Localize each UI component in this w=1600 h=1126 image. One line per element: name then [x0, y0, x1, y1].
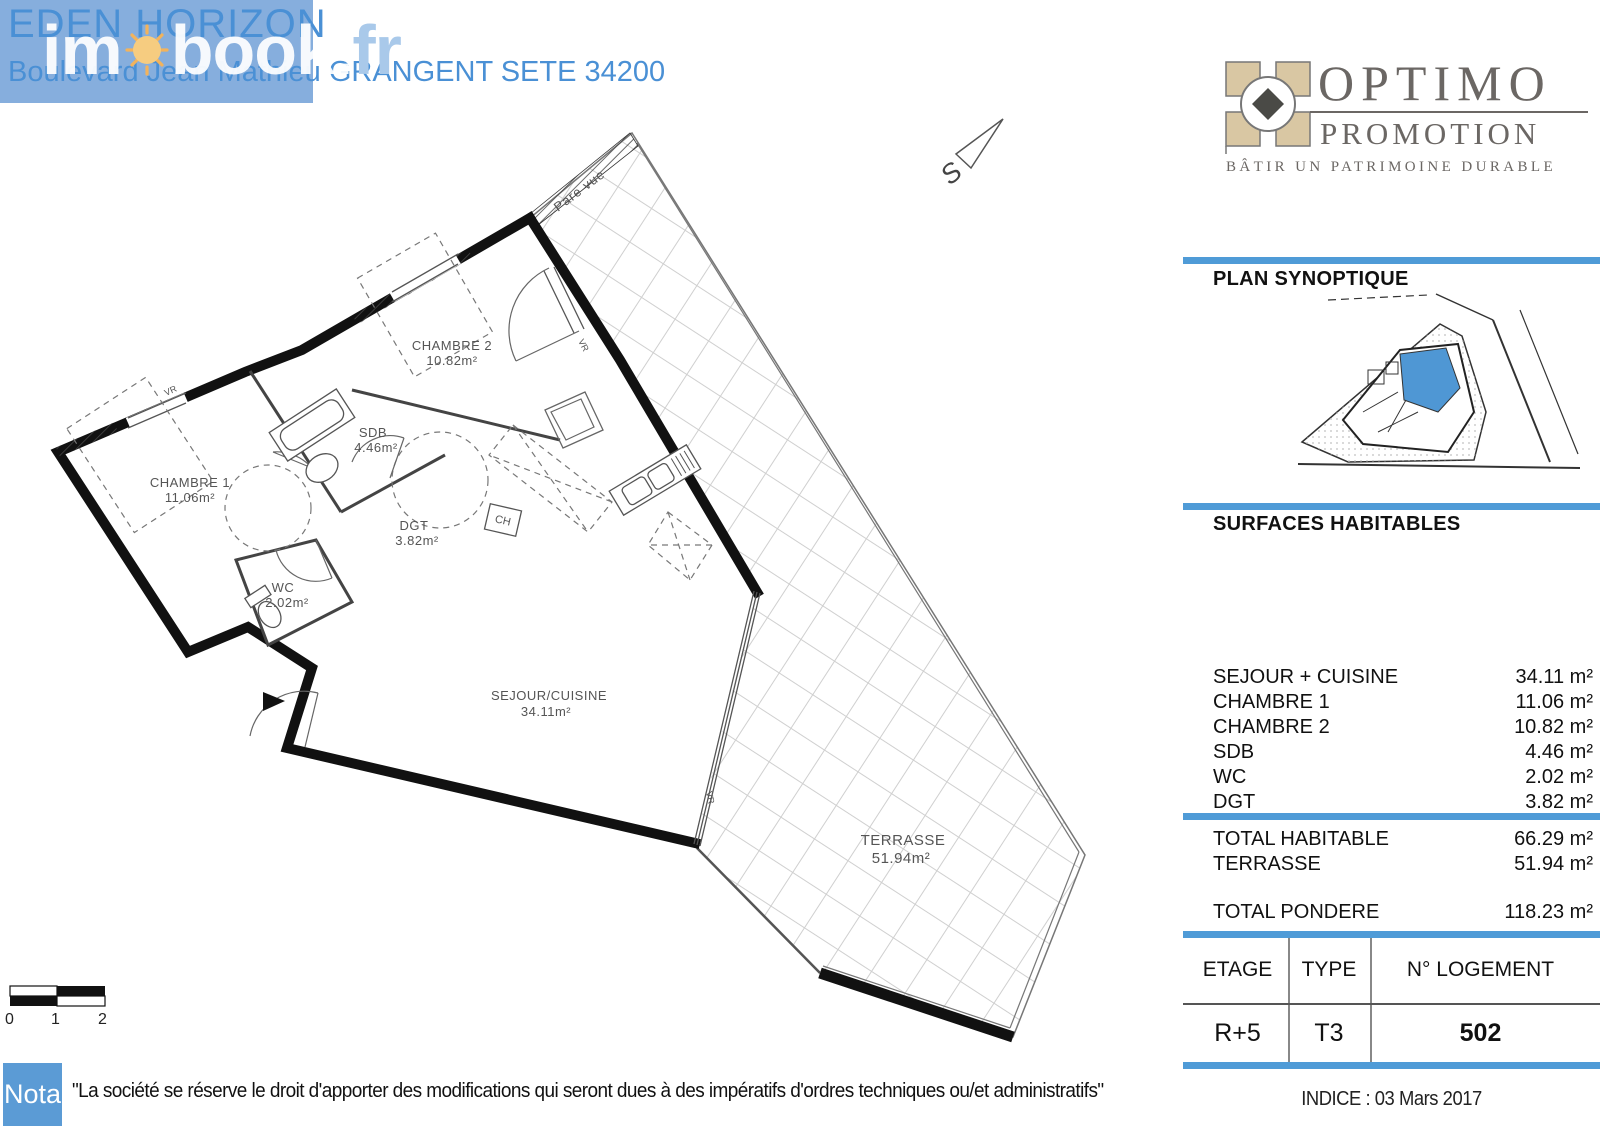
- nota-badge: Nota: [3, 1063, 62, 1126]
- accent-bar: [1183, 1062, 1600, 1069]
- plan-synoptique-title: PLAN SYNOPTIQUE: [1213, 268, 1409, 291]
- surface-row: SDB 4.46 m²: [1213, 741, 1593, 766]
- surface-value: 2.02 m²: [1525, 766, 1593, 791]
- surface-row: WC 2.02 m²: [1213, 766, 1593, 791]
- accent-bar: [1183, 931, 1600, 938]
- room-label: CHAMBRE 1: [150, 475, 230, 490]
- room-area: 10.82m²: [426, 353, 477, 368]
- watermark-dot: .: [334, 10, 352, 90]
- room-area: 51.94m²: [872, 850, 931, 867]
- indice-date: INDICE : 03 Mars 2017: [1200, 1088, 1584, 1111]
- total-value: 66.29 m²: [1514, 828, 1593, 853]
- plan-sheet: Pare vue VR VR: [0, 0, 1600, 1126]
- surface-label: WC: [1213, 766, 1246, 791]
- developer-tagline: BÂTIR UN PATRIMOINE DURABLE: [1226, 159, 1556, 176]
- room-area: 3.82m²: [395, 533, 439, 548]
- scale-bar: 0 1 2: [5, 986, 107, 1028]
- surface-row: SEJOUR + CUISINE 34.11 m²: [1213, 666, 1593, 691]
- surface-row: CHAMBRE 1 11.06 m²: [1213, 691, 1593, 716]
- pondere-row: TOTAL PONDERE 118.23 m²: [1213, 901, 1593, 926]
- surface-value: 10.82 m²: [1514, 716, 1593, 741]
- scale-1: 1: [51, 1011, 60, 1028]
- room-area: 4.46m²: [354, 440, 398, 455]
- room-area: 34.11m²: [521, 704, 571, 719]
- optimo-emblem-icon: [1222, 58, 1314, 154]
- watermark-fr: fr: [352, 10, 401, 90]
- table-row-divider: [1183, 1003, 1600, 1005]
- sun-icon: [124, 24, 170, 76]
- room-label: SEJOUR/CUISINE: [491, 688, 607, 703]
- room-area: 11.06m²: [165, 490, 215, 505]
- total-label: TOTAL HABITABLE: [1213, 828, 1389, 853]
- surfaces-title: SURFACES HABITABLES: [1213, 513, 1461, 536]
- imobook-watermark: im book.fr: [42, 10, 401, 90]
- room-area: 2.02m²: [265, 595, 309, 610]
- watermark-book: book: [171, 10, 334, 90]
- vr-label: VR: [163, 383, 179, 397]
- total-row: TOTAL HABITABLE 66.29 m²: [1213, 828, 1593, 853]
- compass-arrow-icon: [956, 119, 1003, 168]
- surface-value: 4.46 m²: [1525, 741, 1593, 766]
- room-label: TERRASSE: [861, 832, 946, 849]
- logo-divider: [1310, 111, 1588, 113]
- total-value: 51.94 m²: [1514, 853, 1593, 878]
- table-divider: [1288, 938, 1290, 1062]
- table-header-etage: ETAGE: [1190, 958, 1285, 982]
- floor-plan-drawing: Pare vue VR VR: [0, 0, 1170, 1126]
- scale-2: 2: [98, 1011, 107, 1028]
- surface-label: SDB: [1213, 741, 1254, 766]
- accent-bar: [1183, 503, 1600, 510]
- pondere-label: TOTAL PONDERE: [1213, 901, 1379, 926]
- developer-subtitle: PROMOTION: [1320, 116, 1540, 152]
- table-value-logement: 502: [1373, 1019, 1588, 1048]
- entrance-arrow-icon: [263, 692, 285, 711]
- total-label: TERRASSE: [1213, 853, 1321, 878]
- nota-text: "La société se réserve le droit d'apport…: [72, 1080, 1079, 1103]
- watermark-im: im: [42, 10, 122, 90]
- total-row: TERRASSE 51.94 m²: [1213, 853, 1593, 878]
- table-divider: [1370, 938, 1372, 1062]
- room-label: WC: [272, 580, 295, 595]
- table-header-type: TYPE: [1291, 958, 1367, 982]
- surface-label: SEJOUR + CUISINE: [1213, 666, 1398, 691]
- surface-row: CHAMBRE 2 10.82 m²: [1213, 716, 1593, 741]
- surface-value: 11.06 m²: [1516, 691, 1593, 716]
- synoptique-thumbnail: [1288, 292, 1588, 477]
- room-label: CHAMBRE 2: [412, 338, 492, 353]
- table-header-logement: N° LOGEMENT: [1373, 958, 1588, 982]
- surface-label: CHAMBRE 2: [1213, 716, 1330, 741]
- table-value-type: T3: [1291, 1019, 1367, 1048]
- compass: S: [935, 119, 1003, 191]
- room-label: DGT: [400, 518, 429, 533]
- surface-value: 34.11 m²: [1516, 666, 1593, 691]
- room-label: SDB: [359, 425, 387, 440]
- pondere-value: 118.23 m²: [1504, 901, 1593, 926]
- accent-bar: [1183, 813, 1600, 820]
- accent-bar: [1183, 257, 1600, 264]
- surface-label: CHAMBRE 1: [1213, 691, 1330, 716]
- scale-0: 0: [5, 1011, 14, 1028]
- table-value-etage: R+5: [1190, 1019, 1285, 1048]
- developer-name: OPTIMO: [1318, 54, 1552, 112]
